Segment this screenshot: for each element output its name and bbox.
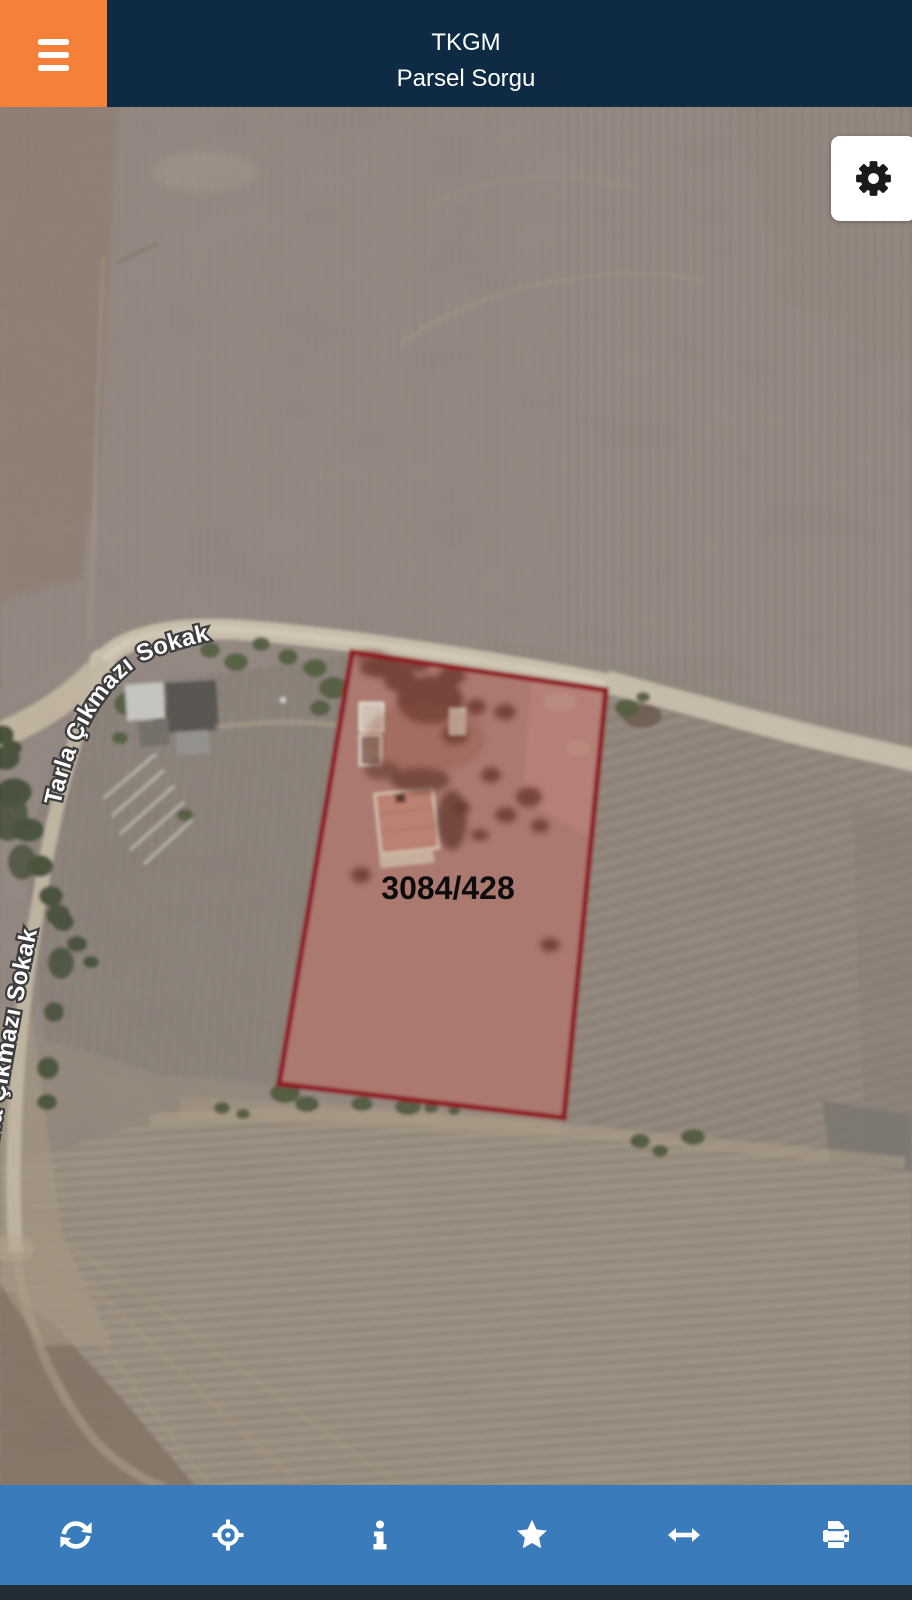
svg-text:3084/428: 3084/428 (381, 870, 514, 906)
